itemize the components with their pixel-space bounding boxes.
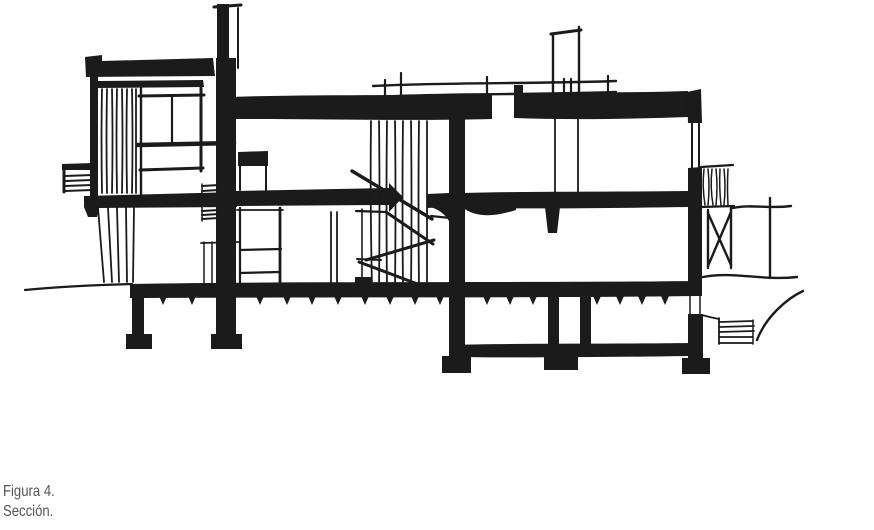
- main-roof-slab: [229, 85, 702, 123]
- right-wall: [682, 123, 710, 374]
- left-tower-louver-window: [102, 88, 235, 196]
- section-drawing: [0, 0, 874, 530]
- center-column: [442, 117, 471, 373]
- left-louver-box: [62, 163, 93, 192]
- right-terrain-grate: [702, 291, 803, 344]
- right-cross-brace: [708, 207, 731, 268]
- figure-container: Figura 4. Sección.: [0, 0, 874, 530]
- right-terrace: [703, 198, 797, 278]
- ground-slab: [25, 281, 700, 349]
- figure-caption-text: Sección.: [3, 502, 55, 522]
- left-tower: [85, 55, 215, 196]
- figure-label: Figura 4.: [3, 482, 55, 502]
- basement: [452, 297, 690, 370]
- right-exterior-louver: [701, 165, 734, 207]
- upper-bracket: [238, 151, 268, 190]
- figure-caption: Figura 4. Sección.: [3, 482, 55, 522]
